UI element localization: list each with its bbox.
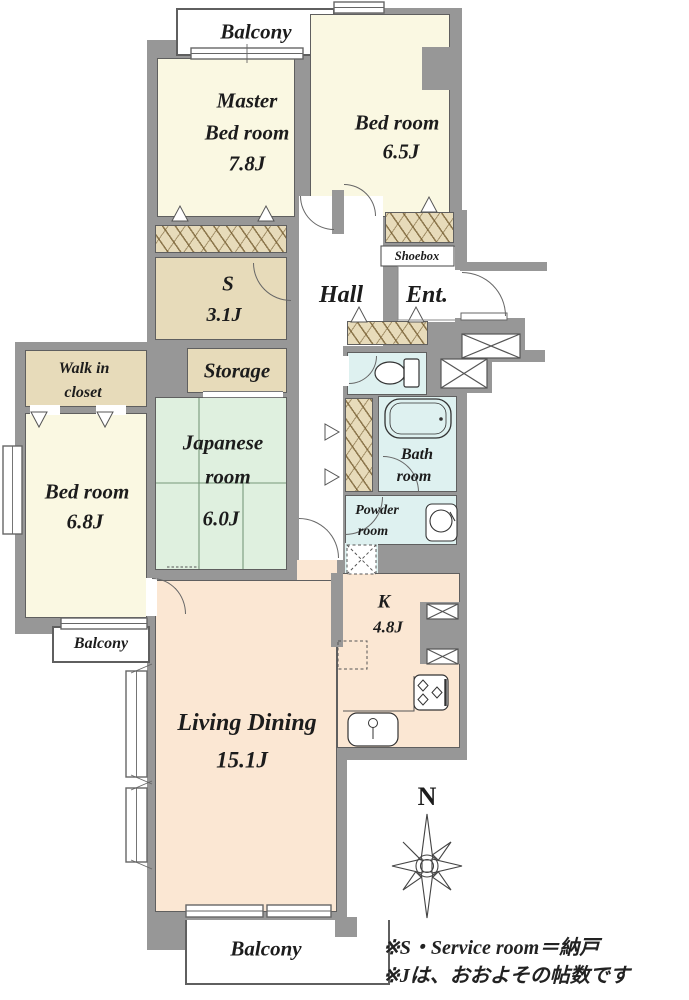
walk-in-closet-label: Walk in [59, 361, 110, 377]
japanese-room-label: room [205, 467, 251, 488]
master-bedroom-label: Master [217, 91, 278, 112]
stove-icon [414, 675, 448, 710]
powder-room-label: room [358, 525, 388, 539]
legend-line-2: ※Jは、おおよその帖数です [383, 966, 630, 986]
shoebox-label: Shoebox [395, 250, 439, 263]
master-bedroom-label: Bed room [205, 123, 290, 144]
entrance-label: Ent. [406, 283, 448, 307]
hall-label: Hall [319, 283, 363, 307]
japanese-room-label: Japanese [183, 433, 264, 454]
legend-line-1: ※S・Service room＝納戸 [383, 938, 599, 958]
bedroom-65-size: 6.5J [383, 142, 420, 163]
japanese-room-size: 6.0J [203, 509, 240, 530]
compass-north-label: N [418, 784, 437, 810]
washbasin-icon [426, 504, 457, 541]
kitchen-label: K [378, 593, 391, 612]
living-dining-size: 15.1J [216, 749, 268, 772]
washer-space [347, 545, 376, 574]
bedroom-65-label: Bed room [355, 113, 440, 134]
service-room-size: 3.1J [207, 305, 242, 325]
bedroom-68-label: Bed room [45, 482, 130, 503]
kitchen-counter [343, 676, 414, 711]
balcony-left-label: Balcony [74, 636, 128, 652]
bathroom-label: Bath [401, 447, 433, 463]
compass-rose [392, 814, 462, 918]
service-room-label: S [222, 274, 234, 295]
living-dining-label: Living Dining [177, 711, 316, 735]
master-bedroom-size: 7.8J [229, 154, 266, 175]
windows [3, 2, 384, 917]
bathroom-label: room [397, 469, 432, 485]
walk-in-closet-label: closet [64, 385, 101, 401]
storage-label: Storage [204, 361, 271, 382]
bathtub-icon [385, 399, 451, 438]
kitchen-sink-icon [348, 713, 398, 746]
balcony-top-label: Balcony [220, 22, 291, 43]
pipe-space-boxes [427, 334, 520, 664]
balcony-bottom-label: Balcony [230, 939, 301, 960]
powder-room-label: Powder [355, 504, 399, 518]
toilet-icon [375, 359, 419, 387]
bedroom-68-size: 6.8J [67, 512, 104, 533]
kitchen-size: 4.8J [373, 619, 403, 636]
floor-plan: Balcony Master Bed room 7.8J Bed room 6.… [0, 0, 689, 1000]
